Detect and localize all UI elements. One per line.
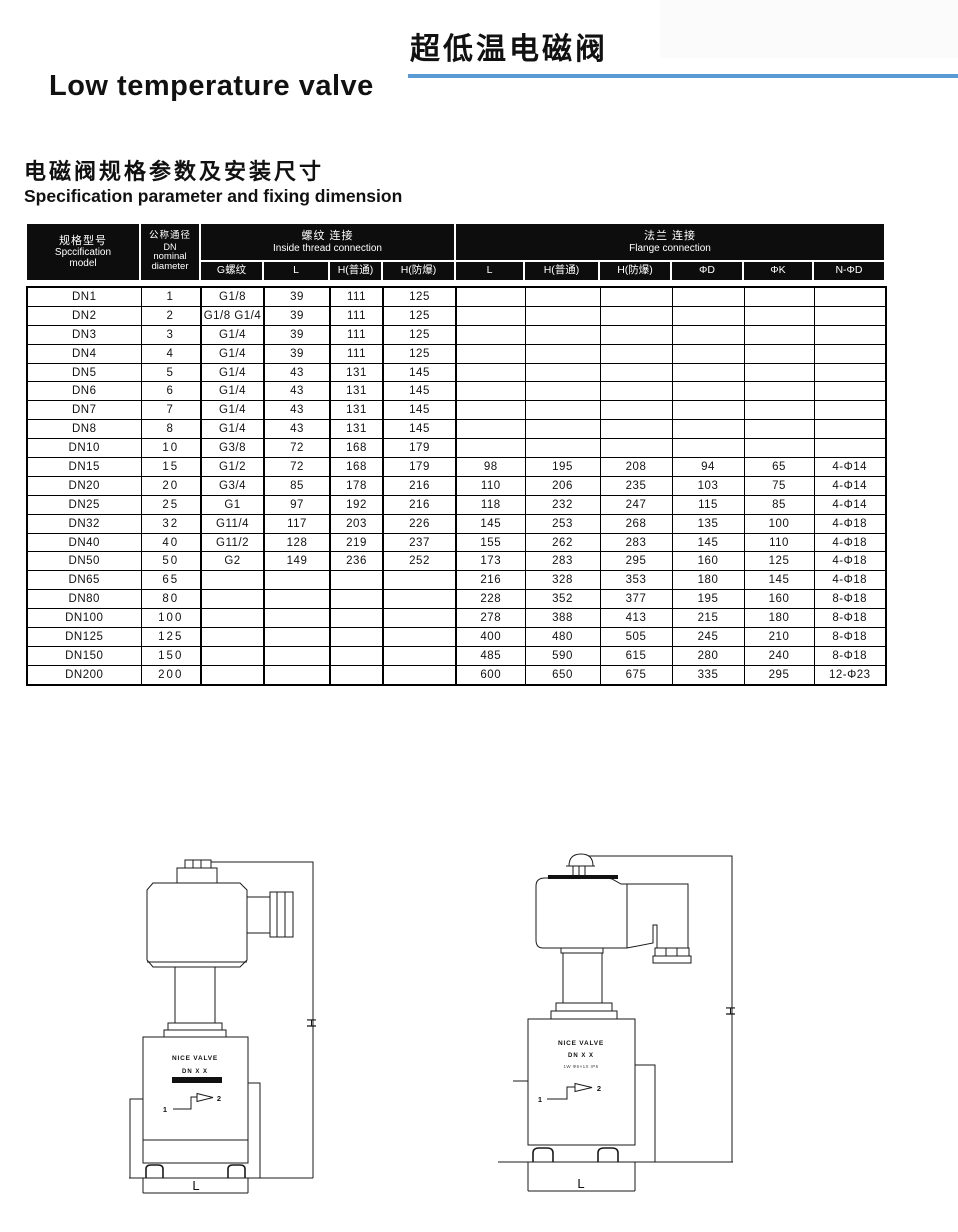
table-cell (672, 401, 744, 420)
table-cell (456, 363, 525, 382)
table-cell: 65 (744, 458, 814, 477)
table-cell: 3 (141, 325, 201, 344)
table-cell (456, 287, 525, 306)
table-cell (201, 590, 264, 609)
table-cell: 145 (383, 382, 456, 401)
table-cell: 208 (600, 458, 672, 477)
table-cell (672, 363, 744, 382)
header-sub-hnormal2: H(普通) (525, 262, 598, 280)
table-cell: 128 (264, 533, 330, 552)
header-sub-phid: ΦD (672, 262, 742, 280)
table-cell: 43 (264, 363, 330, 382)
table-cell (600, 306, 672, 325)
table-cell: 280 (672, 646, 744, 665)
table-cell (456, 420, 525, 439)
table-row: DN44G1/439111125 (27, 344, 886, 363)
gland-segments (655, 948, 689, 956)
table-cell (383, 590, 456, 609)
table-cell (456, 325, 525, 344)
table-cell: 131 (330, 382, 383, 401)
table-cell: 100 (141, 609, 201, 628)
nameplate-brand: NICE VALVE (558, 1040, 604, 1047)
right-nut (598, 1148, 618, 1162)
table-cell (814, 325, 886, 344)
page-title-zh: 超低温电磁阀 (410, 24, 608, 68)
table-cell (201, 571, 264, 590)
table-cell (264, 665, 330, 684)
header-thread-group: 螺纹 连接 Inside thread connection (201, 224, 454, 260)
table-cell: 236 (330, 552, 383, 571)
table-cell: 216 (383, 495, 456, 514)
table-cell: 283 (600, 533, 672, 552)
table-cell: 485 (456, 646, 525, 665)
table-cell: 15 (141, 458, 201, 477)
left-nut (533, 1148, 553, 1162)
table-cell (264, 590, 330, 609)
table-cell: 39 (264, 287, 330, 306)
table-cell (383, 628, 456, 647)
table-cell: 192 (330, 495, 383, 514)
table-cell: 237 (383, 533, 456, 552)
table-cell: 179 (383, 458, 456, 477)
table-cell: 145 (383, 363, 456, 382)
table-cell (744, 382, 814, 401)
table-cell: 8-Φ18 (814, 646, 886, 665)
table-cell (744, 325, 814, 344)
table-cell: 8 (141, 420, 201, 439)
table-cell: 4-Φ18 (814, 514, 886, 533)
table-cell: 111 (330, 325, 383, 344)
table-cell: DN7 (27, 401, 141, 420)
table-cell: 295 (600, 552, 672, 571)
table-cell (201, 628, 264, 647)
table-cell (525, 306, 600, 325)
table-cell: 32 (141, 514, 201, 533)
table-row: DN20020060065067533529512-Φ23 (27, 665, 886, 684)
table-cell: 110 (744, 533, 814, 552)
table-cell: 247 (600, 495, 672, 514)
table-cell: 131 (330, 401, 383, 420)
table-row: DN1515G1/2721681799819520894654-Φ14 (27, 458, 886, 477)
table-cell (672, 382, 744, 401)
header-model: 规格型号 Spccification model (27, 224, 139, 280)
table-cell: G11/4 (201, 514, 264, 533)
table-cell: DN80 (27, 590, 141, 609)
left-port-tab (130, 1099, 143, 1178)
table-cell: G1 (201, 495, 264, 514)
table-cell: 43 (264, 401, 330, 420)
table-cell: 240 (744, 646, 814, 665)
nameplate-brand: NICE VALVE (172, 1055, 218, 1062)
table-cell: 85 (264, 476, 330, 495)
table-cell: 150 (141, 646, 201, 665)
table-cell: G1/4 (201, 401, 264, 420)
table-cell: 203 (330, 514, 383, 533)
table-cell: 377 (600, 590, 672, 609)
table-cell (201, 665, 264, 684)
table-cell: 10 (141, 439, 201, 458)
stem-flange-lower (551, 1011, 617, 1019)
nameplate-model: DN X X (182, 1069, 208, 1075)
table-cell: 262 (525, 533, 600, 552)
table-cell (330, 628, 383, 647)
table-cell: 25 (141, 495, 201, 514)
table-cell (525, 325, 600, 344)
table-cell: 155 (456, 533, 525, 552)
table-cell: 200 (141, 665, 201, 684)
stem-lip (561, 948, 603, 953)
cap (177, 868, 217, 883)
table-cell: 245 (672, 628, 744, 647)
table-cell: 145 (383, 401, 456, 420)
table-cell (456, 306, 525, 325)
table-cell: 80 (141, 590, 201, 609)
port-1-label: 1 (163, 1105, 167, 1114)
table-cell (600, 382, 672, 401)
table-cell (456, 401, 525, 420)
table-cell (672, 439, 744, 458)
table-cell: DN1 (27, 287, 141, 306)
header-sub-l2: L (456, 262, 523, 280)
table-cell (525, 439, 600, 458)
table-cell: DN15 (27, 458, 141, 477)
table-cell: 179 (383, 439, 456, 458)
table-cell: 4-Φ14 (814, 495, 886, 514)
table-cell: 110 (456, 476, 525, 495)
table-cell: 4-Φ18 (814, 571, 886, 590)
table-row: DN5050G21492362521732832951601254-Φ18 (27, 552, 886, 571)
table-cell: 8-Φ18 (814, 590, 886, 609)
table-cell (456, 344, 525, 363)
table-cell: 215 (672, 609, 744, 628)
section-title-zh: 电磁阀规格参数及安装尺寸 (24, 154, 324, 186)
nameplate-model: DN X X (568, 1053, 594, 1059)
table-cell (814, 382, 886, 401)
table-cell: 4-Φ14 (814, 476, 886, 495)
table-cell: 39 (264, 344, 330, 363)
table-cell: 20 (141, 476, 201, 495)
header-sub-hex1: H(防爆) (383, 262, 454, 280)
table-cell: 117 (264, 514, 330, 533)
table-cell: DN100 (27, 609, 141, 628)
table-cell: 4-Φ14 (814, 458, 886, 477)
table-cell: DN50 (27, 552, 141, 571)
header-flange-zh: 法兰 连接 (644, 230, 696, 242)
catalog-page: 超低温电磁阀 Low temperature valve 电磁阀规格参数及安装尺… (0, 0, 958, 1232)
table-cell: 125 (383, 344, 456, 363)
table-cell (814, 287, 886, 306)
table-cell (600, 287, 672, 306)
table-cell: 160 (672, 552, 744, 571)
table-cell: 131 (330, 363, 383, 382)
table-row: DN2020G3/485178216110206235103754-Φ14 (27, 476, 886, 495)
table-cell: DN65 (27, 571, 141, 590)
table-cell (264, 628, 330, 647)
table-cell (456, 439, 525, 458)
table-cell: DN10 (27, 439, 141, 458)
table-cell (672, 306, 744, 325)
table-cell (600, 439, 672, 458)
table-cell: 111 (330, 344, 383, 363)
table-cell (600, 363, 672, 382)
coil-housing (147, 883, 247, 967)
port-1-label: 1 (538, 1095, 542, 1104)
dim-label-h: H (723, 1006, 738, 1015)
dim-label-l: L (192, 1178, 199, 1193)
table-cell: 216 (456, 571, 525, 590)
left-nut (146, 1165, 163, 1178)
table-cell: 39 (264, 325, 330, 344)
table-cell (264, 609, 330, 628)
table-row: DN66G1/443131145 (27, 382, 886, 401)
stem (175, 967, 215, 1023)
table-cell: G1/2 (201, 458, 264, 477)
table-cell (814, 363, 886, 382)
table-row: DN4040G11/21282192371552622831451104-Φ18 (27, 533, 886, 552)
table-cell: 7 (141, 401, 201, 420)
table-cell: DN20 (27, 476, 141, 495)
table-cell (330, 571, 383, 590)
table-cell: 210 (744, 628, 814, 647)
table-cell (600, 325, 672, 344)
table-cell: 125 (141, 628, 201, 647)
table-cell: 8-Φ18 (814, 628, 886, 647)
table-row: DN55G1/443131145 (27, 363, 886, 382)
table-cell: DN25 (27, 495, 141, 514)
table-cell: 125 (383, 325, 456, 344)
table-cell (814, 420, 886, 439)
table-cell: 295 (744, 665, 814, 684)
table-cell: 4-Φ18 (814, 552, 886, 571)
body-lower-band (143, 1140, 248, 1163)
table-cell: 168 (330, 439, 383, 458)
table-cell (330, 590, 383, 609)
nameplate-bar (172, 1077, 222, 1083)
table-cell (383, 609, 456, 628)
table-cell: G1/8 (201, 287, 264, 306)
table-cell (744, 287, 814, 306)
table-cell: 43 (264, 382, 330, 401)
table-cell: 12-Φ23 (814, 665, 886, 684)
table-cell: 75 (744, 476, 814, 495)
table-cell (525, 420, 600, 439)
table-cell: 39 (264, 306, 330, 325)
table-cell (744, 401, 814, 420)
table-cell: 160 (744, 590, 814, 609)
table-cell (672, 344, 744, 363)
table-cell: 253 (525, 514, 600, 533)
header-dn-zh: 公称通径 (149, 231, 191, 242)
valve-diagram-threaded: H NICE VALVE DN X X 1 2 (80, 845, 350, 1210)
table-row: DN3232G11/41172032261452532681351004-Φ18 (27, 514, 886, 533)
table-cell: 111 (330, 287, 383, 306)
stem-flange-lower (164, 1030, 226, 1037)
table-cell: 178 (330, 476, 383, 495)
table-cell: 388 (525, 609, 600, 628)
port-2-label: 2 (597, 1084, 601, 1093)
table-cell: 413 (600, 609, 672, 628)
table-row: DN2525G197192216118232247115854-Φ14 (27, 495, 886, 514)
table-cell: 206 (525, 476, 600, 495)
accent-rule (408, 74, 958, 78)
table-cell (525, 344, 600, 363)
table-cell (383, 571, 456, 590)
table-cell: DN200 (27, 665, 141, 684)
table-cell: 98 (456, 458, 525, 477)
table-cell (600, 344, 672, 363)
table-cell: 85 (744, 495, 814, 514)
table-cell (383, 646, 456, 665)
table-cell: 94 (672, 458, 744, 477)
table-cell: 145 (456, 514, 525, 533)
table-cell: 675 (600, 665, 672, 684)
table-cell: 97 (264, 495, 330, 514)
table-cell (264, 571, 330, 590)
table-cell (525, 287, 600, 306)
table-cell: G1/4 (201, 344, 264, 363)
table-cell: 615 (600, 646, 672, 665)
table-cell: 118 (456, 495, 525, 514)
table-cell: DN8 (27, 420, 141, 439)
header-sub-phik: ΦK (744, 262, 812, 280)
header-thread-zh: 螺纹 连接 (301, 230, 353, 242)
coil-housing (536, 878, 688, 948)
table-cell: 278 (456, 609, 525, 628)
table-row: DN33G1/439111125 (27, 325, 886, 344)
table-cell: 180 (672, 571, 744, 590)
table-row: DN88G1/443131145 (27, 420, 886, 439)
table-cell (330, 646, 383, 665)
header-sub-hex2: H(防爆) (600, 262, 670, 280)
header-sub-nphid: N-ΦD (814, 262, 884, 280)
header-flange-group: 法兰 连接 Flange connection (456, 224, 884, 260)
header-sub-l1: L (264, 262, 328, 280)
table-cell: G3/8 (201, 439, 264, 458)
table-cell (525, 363, 600, 382)
header-thread-en: Inside thread connection (273, 243, 382, 254)
table-cell (672, 420, 744, 439)
table-cell: 72 (264, 458, 330, 477)
table-cell: 219 (330, 533, 383, 552)
table-cell: DN40 (27, 533, 141, 552)
table-cell: 505 (600, 628, 672, 647)
table-cell (744, 420, 814, 439)
dim-label-h: H (304, 1018, 319, 1027)
table-row: DN1010G3/872168179 (27, 439, 886, 458)
header-sub-hnormal1: H(普通) (330, 262, 381, 280)
right-nut (228, 1165, 245, 1178)
valve-body (528, 1019, 635, 1145)
table-cell (744, 306, 814, 325)
spec-table: DN11G1/839111125DN22G1/8 G1/439111125DN3… (26, 286, 887, 686)
table-cell: 480 (525, 628, 600, 647)
header-dn: 公称通径 DN nominal diameter (141, 224, 199, 280)
table-cell: 268 (600, 514, 672, 533)
table-cell: 4 (141, 344, 201, 363)
valve-diagram-flanged: H NICE VALVE DN X X 1W Φ6×1X IP5 1 2 (495, 843, 767, 1218)
page-title-en: Low temperature valve (49, 70, 374, 103)
table-cell: G1/4 (201, 325, 264, 344)
table-cell: 40 (141, 533, 201, 552)
table-cell: 235 (600, 476, 672, 495)
header-dn-en2: diameter (152, 262, 189, 273)
table-row: DN11G1/839111125 (27, 287, 886, 306)
table-cell: 228 (456, 590, 525, 609)
table-cell: 103 (672, 476, 744, 495)
connector-neck (247, 897, 270, 933)
valve-body (143, 1037, 248, 1140)
table-cell: DN150 (27, 646, 141, 665)
table-cell (744, 344, 814, 363)
table-cell: 600 (456, 665, 525, 684)
table-cell: 145 (744, 571, 814, 590)
table-cell: 149 (264, 552, 330, 571)
section-title-en: Specification parameter and fixing dimen… (24, 186, 402, 207)
table-cell (814, 344, 886, 363)
table-cell: 335 (672, 665, 744, 684)
table-cell: 5 (141, 363, 201, 382)
table-cell (600, 401, 672, 420)
table-row: DN1501504855906152802408-Φ18 (27, 646, 886, 665)
table-cell: 226 (383, 514, 456, 533)
table-cell (672, 287, 744, 306)
ghost-watermark (660, 0, 958, 58)
table-cell: 8-Φ18 (814, 609, 886, 628)
table-cell: 352 (525, 590, 600, 609)
table-cell: 232 (525, 495, 600, 514)
table-cell: 353 (600, 571, 672, 590)
header-model-en1: Spccification (55, 247, 111, 258)
table-cell (383, 665, 456, 684)
table-cell: 100 (744, 514, 814, 533)
header-model-zh: 规格型号 (59, 235, 107, 247)
table-row: DN1251254004805052452108-Φ18 (27, 628, 886, 647)
table-cell: 125 (383, 306, 456, 325)
table-cell: 283 (525, 552, 600, 571)
table-cell: 195 (672, 590, 744, 609)
table-cell: 2 (141, 306, 201, 325)
table-cell (201, 609, 264, 628)
right-port-tab (248, 1083, 260, 1178)
table-cell: 195 (525, 458, 600, 477)
table-cell: G1/4 (201, 363, 264, 382)
table-cell: DN6 (27, 382, 141, 401)
table-cell (525, 382, 600, 401)
dim-label-l: L (577, 1176, 584, 1191)
table-cell: 125 (383, 287, 456, 306)
table-cell: 328 (525, 571, 600, 590)
table-cell: 43 (264, 420, 330, 439)
table-cell: G11/2 (201, 533, 264, 552)
gland-base (653, 956, 691, 963)
table-cell: 125 (744, 552, 814, 571)
table-cell: DN3 (27, 325, 141, 344)
table-cell: 145 (672, 533, 744, 552)
table-cell (814, 306, 886, 325)
table-cell: 65 (141, 571, 201, 590)
port-2-label: 2 (217, 1094, 221, 1103)
table-cell: 400 (456, 628, 525, 647)
right-port-tab (635, 1065, 655, 1162)
nameplate-spec-line: 1W Φ6×1X IP5 (563, 1064, 598, 1069)
header-flange-en: Flange connection (629, 243, 711, 254)
table-cell: DN5 (27, 363, 141, 382)
cap-tabs (185, 860, 211, 868)
table-row: DN77G1/443131145 (27, 401, 886, 420)
table-cell: 72 (264, 439, 330, 458)
header-model-en2: model (69, 258, 96, 269)
stem-flange-upper (556, 1003, 612, 1011)
